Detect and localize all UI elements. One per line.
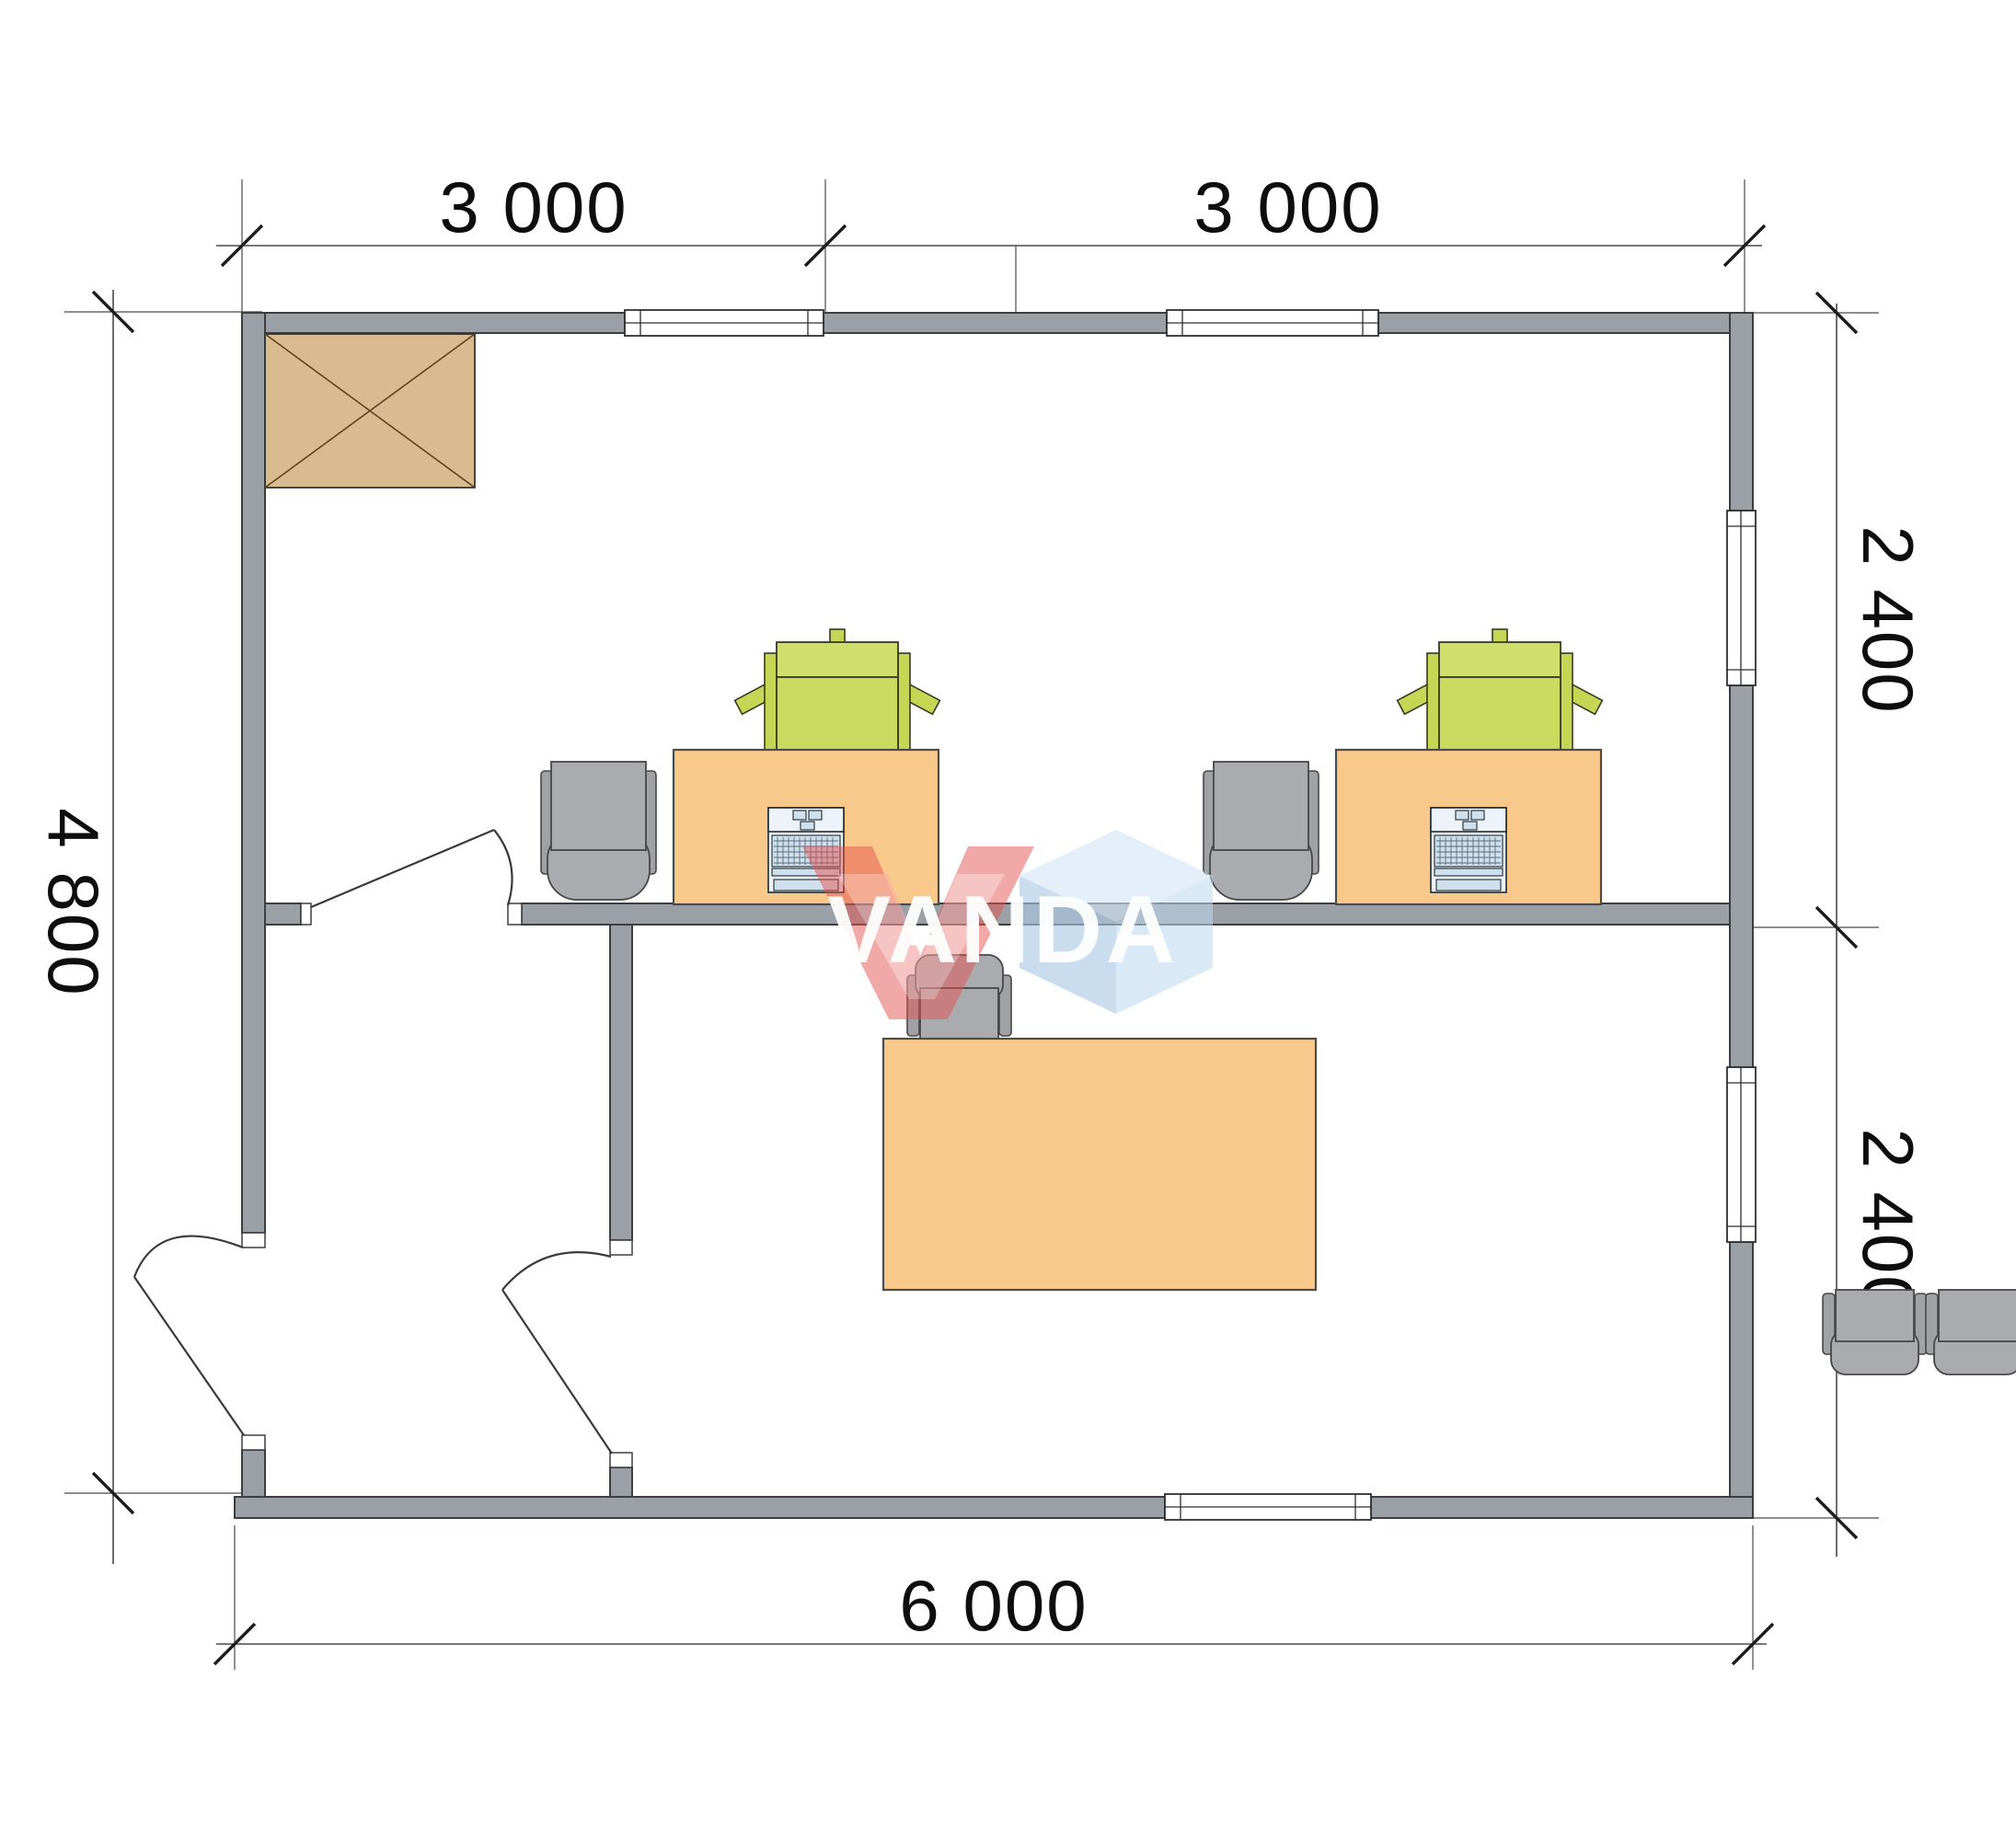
dim-label-right-upper: 2 400 — [1848, 525, 1929, 714]
floor-plan-page: 3 000 3 000 4 800 2 400 2 400 6 000 — [0, 0, 2016, 1840]
dim-label-left: 4 800 — [33, 808, 114, 996]
workstation-left — [541, 629, 939, 904]
dim-label-right-lower: 2 400 — [1848, 1128, 1929, 1317]
door-exterior-left — [134, 1236, 244, 1435]
right-wall-seg2 — [1730, 685, 1753, 1067]
task-chair-green — [735, 629, 940, 751]
door-jambs — [242, 903, 632, 1467]
dim-label-bottom: 6 000 — [899, 1565, 1088, 1646]
door-office-partition — [311, 830, 513, 907]
right-wall-seg3 — [1730, 1242, 1753, 1518]
right-wall-seg1 — [1730, 313, 1753, 511]
cabinet-crosshatched — [265, 334, 475, 488]
left-wall-upper — [242, 313, 265, 1233]
top-wall-seg3 — [1378, 313, 1753, 333]
conference-table — [883, 1039, 1316, 1290]
bottom-wall-seg1 — [235, 1497, 1165, 1518]
hall-wall-vertical-stub — [610, 1467, 632, 1497]
window-top-left — [625, 310, 824, 336]
watermark-text: VANDA — [827, 877, 1179, 983]
conference-chair — [1823, 1290, 1927, 1374]
side-chair-gray — [541, 762, 656, 900]
hall-wall-vertical — [610, 925, 632, 1240]
floor-plan-drawing: 3 000 3 000 4 800 2 400 2 400 6 000 — [0, 0, 2016, 1840]
dim-label-top-right: 3 000 — [1193, 167, 1382, 247]
dim-label-top-left: 3 000 — [439, 167, 628, 247]
door-meeting-room — [502, 1252, 612, 1454]
window-right-lower — [1727, 1067, 1756, 1242]
bottom-wall-seg2 — [1371, 1497, 1753, 1518]
dimension-top: 3 000 3 000 — [216, 167, 1765, 320]
partition-wall-left-stub — [265, 903, 301, 925]
conference-area — [883, 955, 2016, 1840]
window-right-upper — [1727, 511, 1756, 685]
conference-chair — [1926, 1290, 2016, 1374]
top-wall-seg1 — [242, 313, 625, 333]
dimension-bottom: 6 000 — [214, 1525, 1773, 1670]
dimension-left: 4 800 — [33, 290, 262, 1564]
workstation-right — [1204, 629, 1602, 904]
top-wall-seg2 — [824, 313, 1167, 333]
window-bottom — [1165, 1494, 1371, 1520]
window-top-right — [1167, 310, 1378, 336]
